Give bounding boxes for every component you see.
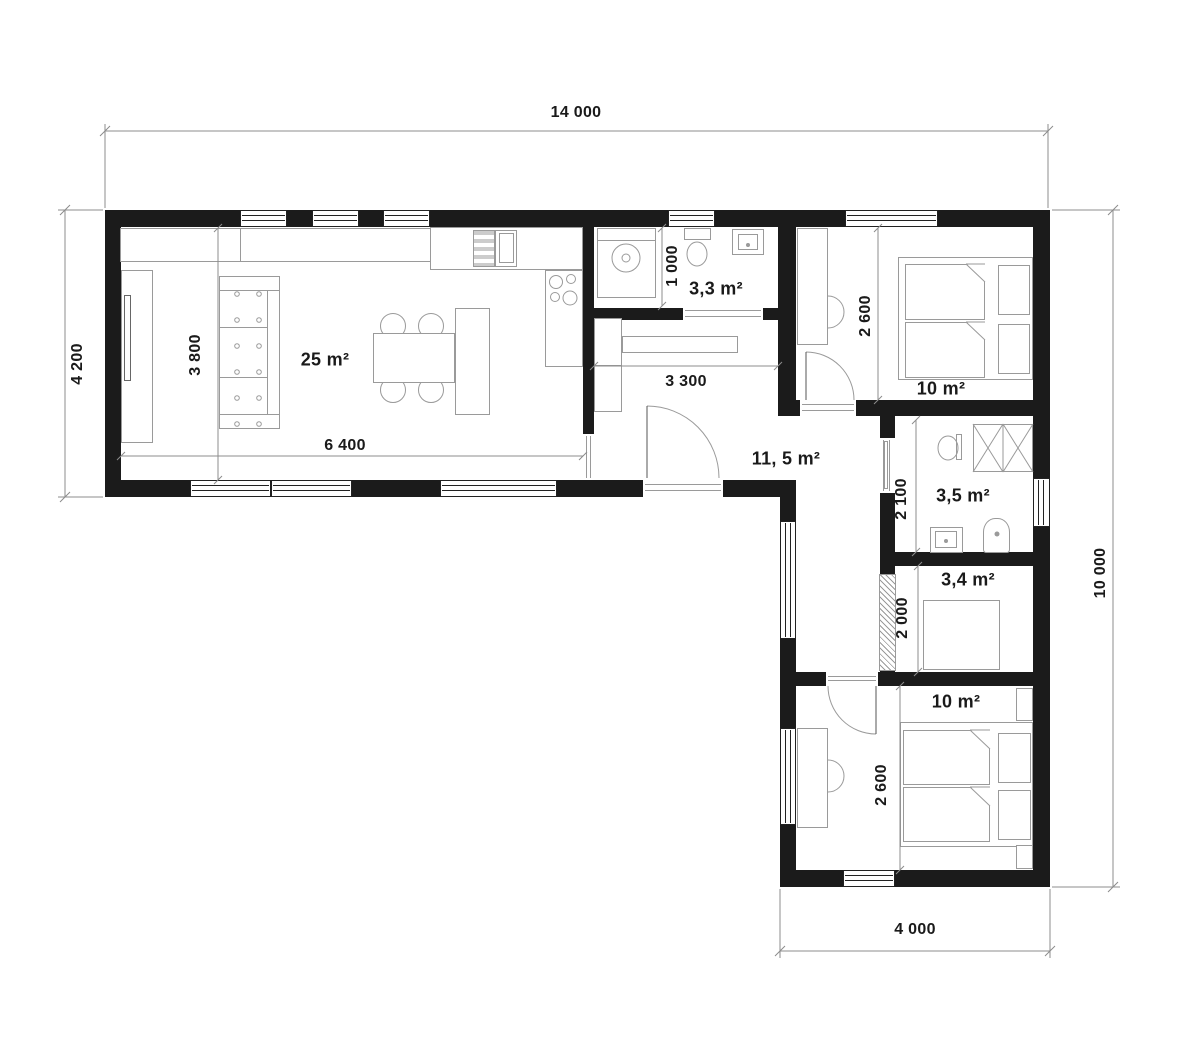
window xyxy=(383,210,430,227)
shelf xyxy=(1016,845,1033,869)
washing-machine-line xyxy=(598,240,655,241)
window xyxy=(190,480,271,497)
cabinet-line xyxy=(220,290,279,291)
entrance-door-opening xyxy=(643,480,723,497)
sink-basin xyxy=(935,531,957,548)
tv xyxy=(124,295,131,381)
bed xyxy=(905,264,985,320)
hall-closet-line xyxy=(595,365,621,366)
dimension-bath-small: 1 000 xyxy=(664,245,682,287)
door-opening-bedroom-top xyxy=(800,400,856,416)
wardrobe-cabinet xyxy=(219,276,280,429)
shower-tray xyxy=(973,424,1033,472)
bed xyxy=(903,730,990,785)
cabinet-line xyxy=(267,291,268,414)
bed xyxy=(903,787,990,842)
dimension-left: 4 200 xyxy=(69,343,87,385)
sink-basin xyxy=(738,234,758,250)
kitchen-island xyxy=(455,308,490,415)
room-label-bedroom-top: 10 m² xyxy=(917,379,966,400)
window xyxy=(312,210,359,227)
top-cabinet-row xyxy=(120,228,480,262)
plan-geometry xyxy=(0,0,1177,1043)
room-label-bathroom: 3,5 m² xyxy=(936,486,990,507)
dimension-bath: 2 100 xyxy=(893,478,911,520)
door-opening-bedroom-bottom xyxy=(826,672,878,686)
wardrobe xyxy=(923,600,1000,670)
dining-table xyxy=(373,333,455,383)
room-label-bathroom-small: 3,3 m² xyxy=(689,279,743,300)
dimension-closet: 2 000 xyxy=(894,597,912,639)
cabinet-divider xyxy=(240,229,241,261)
dimension-bedroom-bottom: 2 600 xyxy=(873,764,891,806)
wall-kitchen-divider xyxy=(583,226,594,434)
shelf xyxy=(1016,688,1033,721)
desk xyxy=(797,728,828,828)
room-label-hall: 11, 5 m² xyxy=(752,449,820,470)
toilet-cistern xyxy=(956,434,962,460)
window xyxy=(780,728,796,825)
nightstand xyxy=(998,790,1031,840)
fridge-door-panel xyxy=(499,233,514,263)
nightstand xyxy=(998,265,1030,315)
passage-living-hall xyxy=(583,434,594,480)
dimension-bottom: 4 000 xyxy=(894,921,936,939)
window xyxy=(845,210,938,227)
wall-left xyxy=(105,210,121,497)
pocket-door-bathroom-small xyxy=(683,306,763,322)
bathroom-door-panel xyxy=(884,441,888,489)
wall-right xyxy=(1033,210,1050,887)
nightstand xyxy=(998,733,1031,783)
dimension-bedroom-top: 2 600 xyxy=(857,295,875,337)
kitchen-counter-side xyxy=(545,270,583,367)
dimension-living-width: 6 400 xyxy=(324,437,366,455)
dimension-top: 14 000 xyxy=(551,104,602,122)
desk xyxy=(797,228,828,345)
window xyxy=(440,480,557,497)
cabinet-line xyxy=(220,327,267,328)
room-label-bedroom-bottom: 10 m² xyxy=(932,692,981,713)
wall-bedroom-top-left xyxy=(778,226,796,416)
window xyxy=(780,521,796,639)
fridge xyxy=(473,230,495,267)
dimension-hall-width: 3 300 xyxy=(665,373,707,391)
boiler xyxy=(983,518,1010,553)
floor-plan: 14 000 4 200 10 000 4 000 3 800 6 400 1 … xyxy=(0,0,1177,1043)
window xyxy=(668,210,715,227)
room-label-living: 25 m² xyxy=(301,350,350,371)
toilet-tank xyxy=(684,228,711,240)
cabinet-line xyxy=(220,377,267,378)
bed xyxy=(905,322,985,378)
window xyxy=(843,870,895,887)
window xyxy=(271,480,352,497)
room-label-closet: 3,4 m² xyxy=(941,570,995,591)
dimension-right: 10 000 xyxy=(1092,548,1110,599)
nightstand xyxy=(998,324,1030,374)
wall-wing-bottom xyxy=(780,870,1050,887)
window xyxy=(240,210,287,227)
dimension-living-depth: 3 800 xyxy=(187,334,205,376)
wall-bath-closet-divider xyxy=(895,552,1035,566)
washing-machine xyxy=(597,228,656,298)
window xyxy=(1033,478,1050,527)
cabinet-line xyxy=(220,414,279,415)
hall-bench xyxy=(622,336,738,353)
